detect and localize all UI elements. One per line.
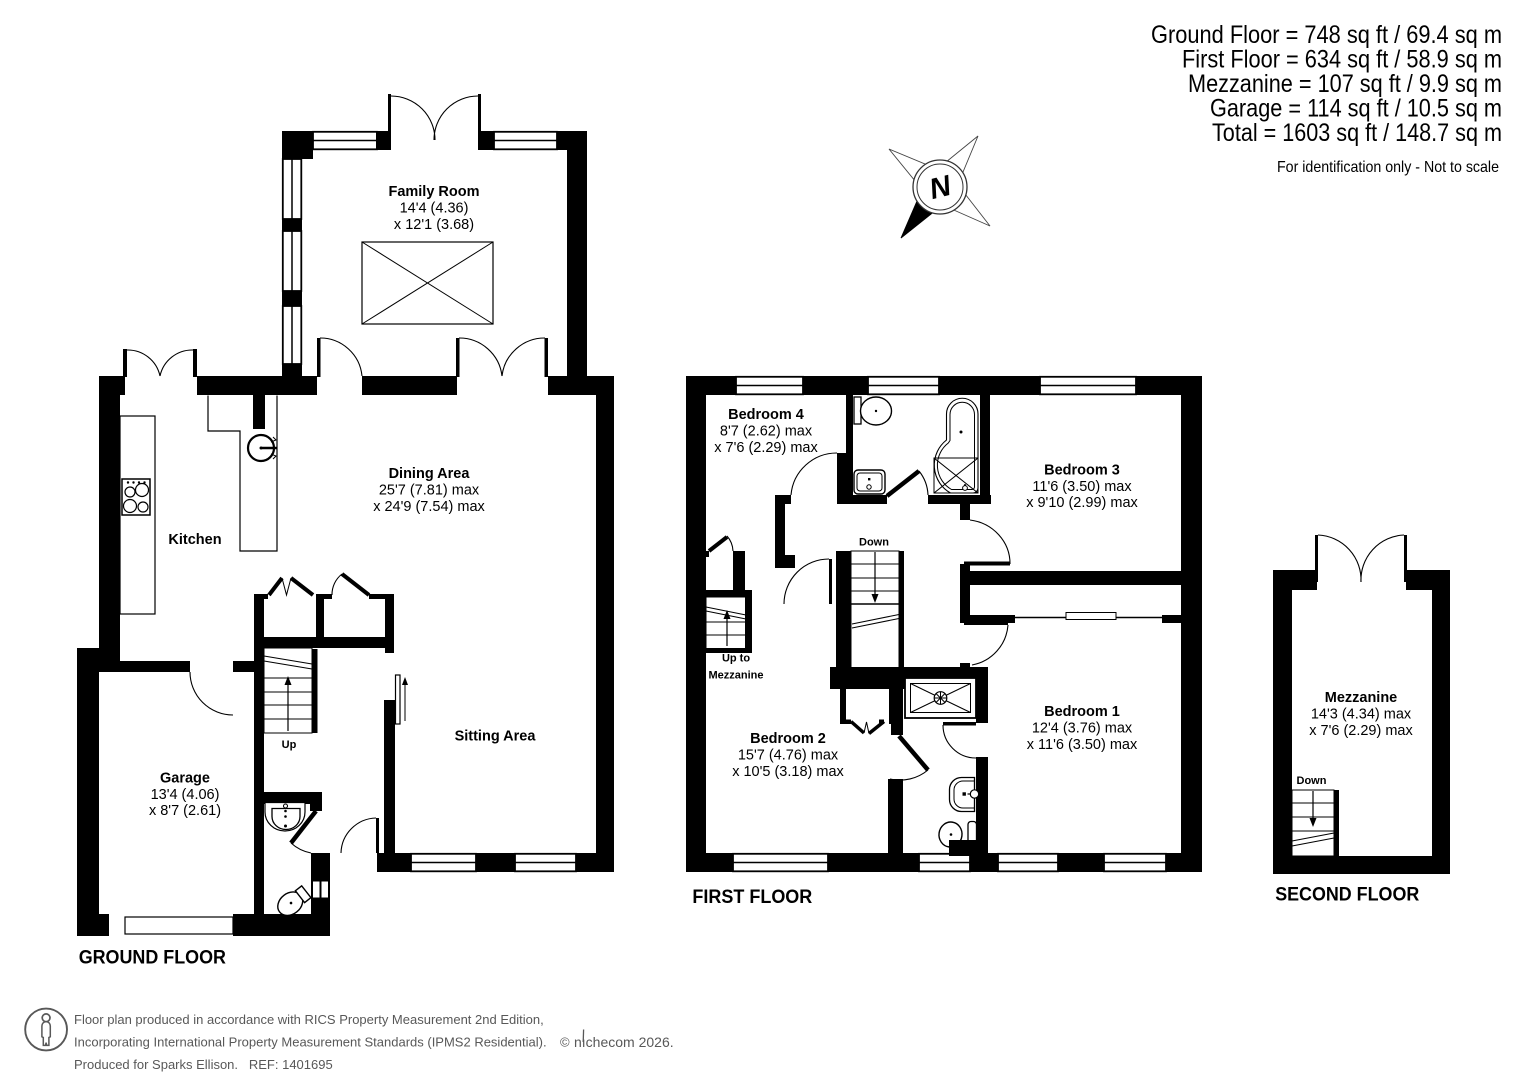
svg-text:Bedroom 2: Bedroom 2 bbox=[750, 731, 826, 747]
svg-text:Bedroom 3: Bedroom 3 bbox=[1044, 462, 1120, 478]
svg-text:x 7'6 (2.29) max: x 7'6 (2.29) max bbox=[714, 440, 818, 456]
svg-text:x 11'6 (3.50) max: x 11'6 (3.50) max bbox=[1027, 737, 1138, 753]
svg-text:Mezzanine: Mezzanine bbox=[1325, 690, 1398, 706]
svg-text:Kitchen: Kitchen bbox=[168, 532, 221, 548]
svg-text:x 9'10 (2.99) max: x 9'10 (2.99) max bbox=[1026, 495, 1138, 511]
svg-text:25'7 (7.81) max: 25'7 (7.81) max bbox=[379, 483, 480, 499]
svg-text:Sitting Area: Sitting Area bbox=[455, 729, 537, 745]
svg-text:FIRST FLOOR: FIRST FLOOR bbox=[692, 887, 812, 908]
svg-text:Produced for Sparks Ellison.: Produced for Sparks Ellison. REF: 140169… bbox=[74, 1057, 333, 1072]
svg-text:11'6 (3.50) max: 11'6 (3.50) max bbox=[1032, 479, 1132, 495]
svg-text:Incorporating International Pr: Incorporating International Property Mea… bbox=[74, 1035, 547, 1050]
svg-text:x 8'7 (2.61): x 8'7 (2.61) bbox=[149, 803, 221, 819]
svg-text:Down: Down bbox=[1297, 775, 1327, 787]
svg-text:Total = 1603 sq ft / 148.7 sq: Total = 1603 sq ft / 148.7 sq m bbox=[1212, 119, 1502, 147]
svg-text:©: © bbox=[560, 1035, 570, 1050]
svg-text:Floor plan produced in accorda: Floor plan produced in accordance with R… bbox=[74, 1012, 544, 1027]
svg-text:Up: Up bbox=[282, 739, 297, 751]
svg-text:Down: Down bbox=[859, 537, 889, 549]
svg-text:x 7'6 (2.29) max: x 7'6 (2.29) max bbox=[1309, 723, 1413, 739]
svg-text:Family Room: Family Room bbox=[388, 184, 479, 200]
svg-text:Dining Area: Dining Area bbox=[389, 466, 471, 482]
svg-text:SECOND FLOOR: SECOND FLOOR bbox=[1275, 884, 1419, 905]
svg-text:nıchecom 2026.: nıchecom 2026. bbox=[574, 1034, 674, 1050]
svg-text:For identification only - Not: For identification only - Not to scale bbox=[1277, 159, 1499, 176]
svg-text:13'4 (4.06): 13'4 (4.06) bbox=[151, 787, 220, 803]
svg-text:8'7 (2.62) max: 8'7 (2.62) max bbox=[720, 423, 813, 439]
svg-text:x 24'9 (7.54) max: x 24'9 (7.54) max bbox=[373, 499, 485, 515]
svg-text:x 12'1 (3.68): x 12'1 (3.68) bbox=[394, 217, 474, 233]
svg-text:12'4 (3.76) max: 12'4 (3.76) max bbox=[1032, 721, 1133, 737]
svg-text:GROUND FLOOR: GROUND FLOOR bbox=[79, 948, 227, 969]
svg-text:15'7 (4.76) max: 15'7 (4.76) max bbox=[738, 747, 839, 763]
svg-text:Mezzanine: Mezzanine bbox=[708, 670, 763, 682]
svg-text:Up to: Up to bbox=[722, 653, 750, 665]
svg-text:Bedroom 1: Bedroom 1 bbox=[1044, 704, 1120, 720]
svg-text:14'3 (4.34) max: 14'3 (4.34) max bbox=[1311, 706, 1412, 722]
svg-text:Bedroom 4: Bedroom 4 bbox=[728, 407, 804, 423]
svg-text:Garage: Garage bbox=[160, 770, 210, 786]
svg-text:14'4 (4.36): 14'4 (4.36) bbox=[400, 200, 469, 216]
svg-text:x 10'5 (3.18) max: x 10'5 (3.18) max bbox=[732, 764, 844, 780]
